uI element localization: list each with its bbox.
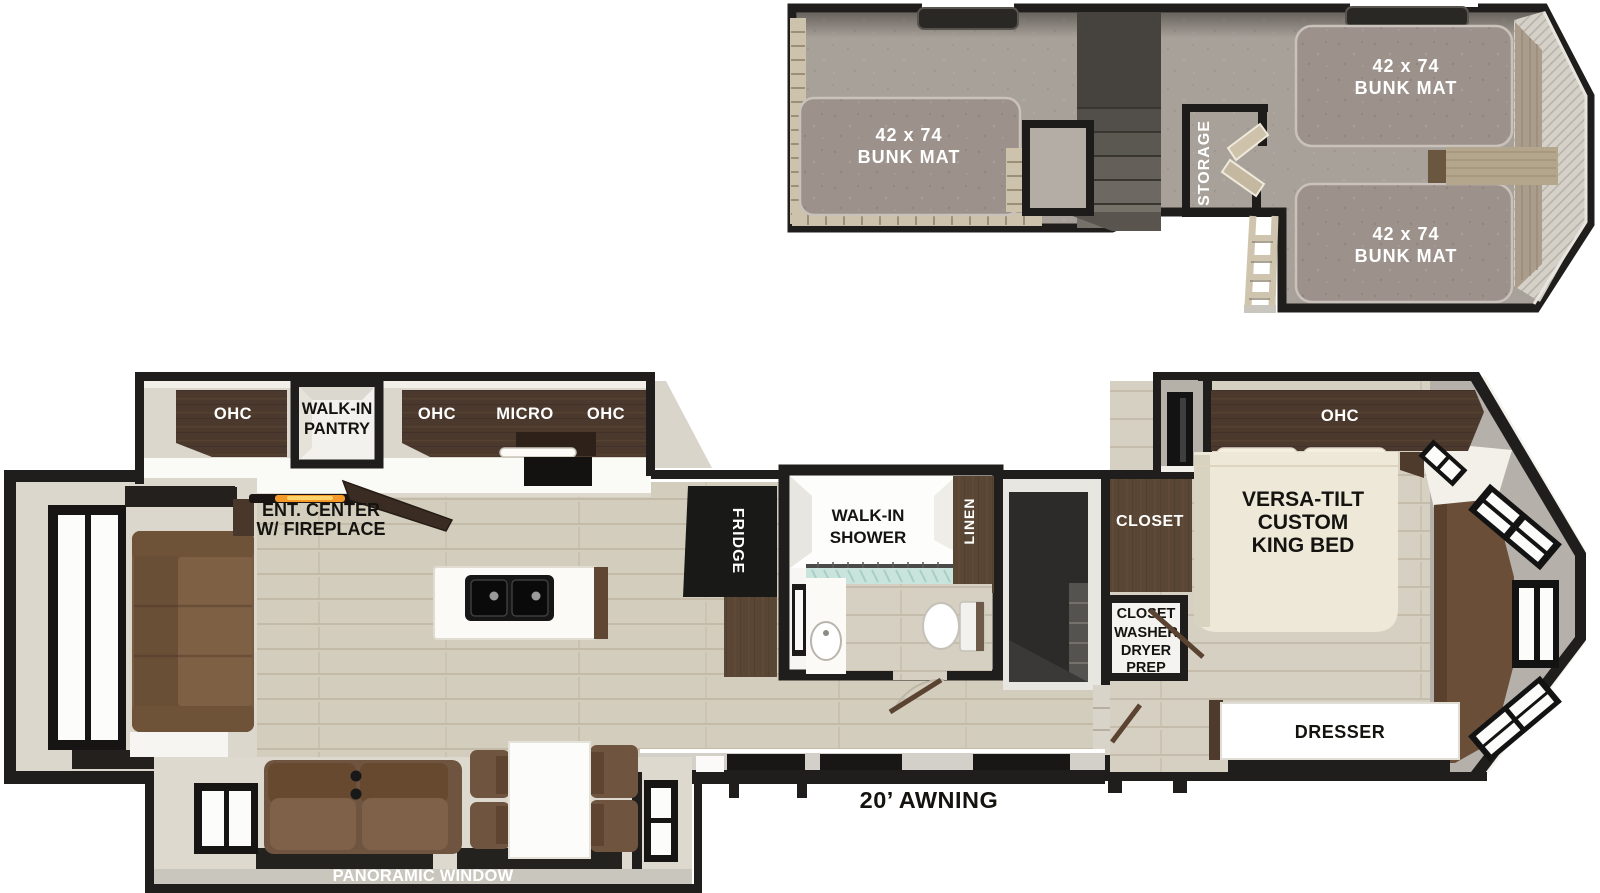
svg-text:W/ FIREPLACE: W/ FIREPLACE	[257, 519, 386, 539]
svg-text:42 x 74: 42 x 74	[1372, 56, 1439, 76]
svg-text:PANTRY: PANTRY	[304, 420, 370, 438]
svg-text:FRIDGE: FRIDGE	[729, 508, 746, 574]
svg-text:PANORAMIC WINDOW: PANORAMIC WINDOW	[333, 867, 514, 885]
svg-text:CLOSET: CLOSET	[1117, 606, 1176, 622]
svg-text:WALK-IN: WALK-IN	[832, 506, 905, 525]
svg-text:BUNK MAT: BUNK MAT	[1355, 78, 1458, 98]
svg-text:SHOWER: SHOWER	[830, 528, 907, 547]
svg-text:BUNK MAT: BUNK MAT	[1355, 246, 1458, 266]
svg-text:DRYER: DRYER	[1121, 643, 1172, 659]
svg-text:ENT. CENTER: ENT. CENTER	[262, 500, 380, 520]
svg-text:VERSA-TILT: VERSA-TILT	[1242, 488, 1364, 511]
svg-text:42 x 74: 42 x 74	[1372, 224, 1439, 244]
svg-text:KING BED: KING BED	[1252, 534, 1355, 557]
svg-text:42 x 74: 42 x 74	[875, 125, 942, 145]
svg-text:CUSTOM: CUSTOM	[1258, 511, 1349, 534]
svg-text:OHC: OHC	[214, 405, 252, 423]
svg-text:PREP: PREP	[1126, 660, 1166, 676]
svg-text:OHC: OHC	[1321, 407, 1359, 425]
svg-text:LINEN: LINEN	[961, 498, 977, 545]
svg-text:20’ AWNING: 20’ AWNING	[860, 787, 999, 813]
svg-text:MICRO: MICRO	[496, 405, 554, 423]
svg-text:DRESSER: DRESSER	[1295, 722, 1386, 742]
svg-text:OHC: OHC	[418, 405, 456, 423]
svg-text:STORAGE: STORAGE	[1196, 120, 1213, 206]
svg-text:OHC: OHC	[587, 405, 625, 423]
svg-text:WALK-IN: WALK-IN	[302, 400, 373, 418]
svg-text:BUNK MAT: BUNK MAT	[858, 147, 961, 167]
svg-text:CLOSET: CLOSET	[1116, 513, 1184, 530]
